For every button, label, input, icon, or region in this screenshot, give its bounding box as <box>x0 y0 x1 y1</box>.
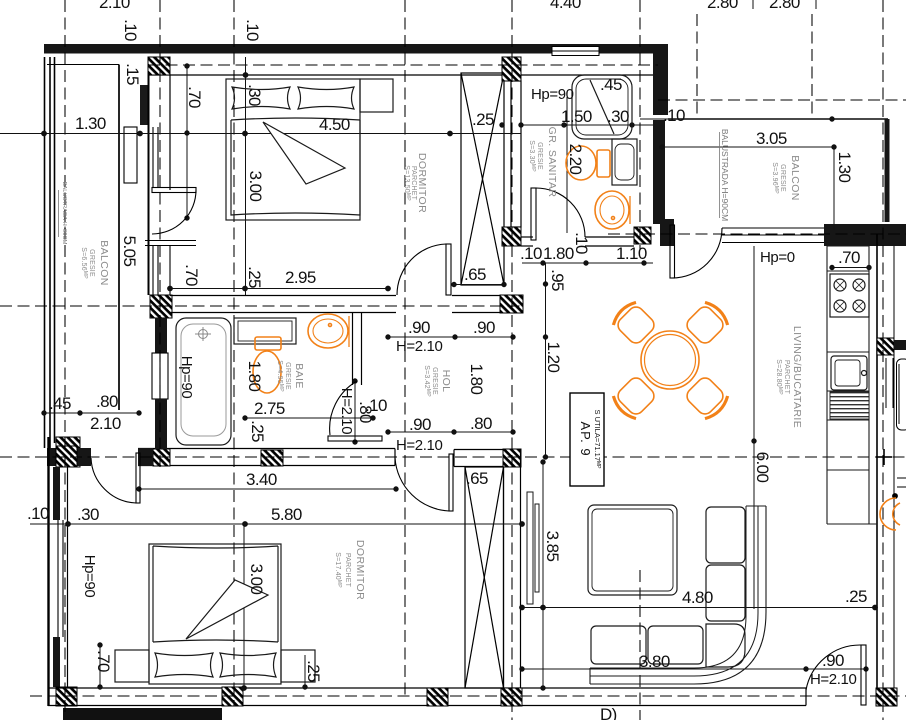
svg-text:.25: .25 <box>472 110 494 129</box>
svg-text:BALCON: BALCON <box>98 240 110 286</box>
svg-text:.25: .25 <box>304 660 323 682</box>
svg-text:.25: .25 <box>845 587 867 606</box>
svg-text:.30: .30 <box>607 107 629 126</box>
svg-text:D): D) <box>600 705 617 720</box>
svg-text:6.00: 6.00 <box>753 452 772 483</box>
svg-text:.10: .10 <box>520 244 542 263</box>
svg-text:BALUSTRADA H=90CM: BALUSTRADA H=90CM <box>720 129 730 221</box>
svg-text:.10: .10 <box>243 19 262 41</box>
svg-text:.70: .70 <box>94 650 113 672</box>
svg-text:.90: .90 <box>473 318 495 337</box>
svg-text:.30: .30 <box>245 84 264 106</box>
svg-text:DORMITOR: DORMITOR <box>354 540 366 600</box>
svg-text:AP. 9: AP. 9 <box>578 421 593 456</box>
svg-text:BALCON: BALCON <box>789 155 801 201</box>
svg-text:3.05: 3.05 <box>756 129 787 148</box>
svg-text:.80: .80 <box>96 392 118 411</box>
svg-text:LIVING/BUCATARIE: LIVING/BUCATARIE <box>791 326 803 428</box>
svg-text:.10: .10 <box>27 504 49 523</box>
svg-text:.95: .95 <box>548 269 567 291</box>
svg-text:3.40: 3.40 <box>246 470 277 489</box>
svg-text:.65: .65 <box>464 265 486 284</box>
svg-text:1.50: 1.50 <box>561 107 592 126</box>
svg-text:4.80: 4.80 <box>682 588 713 607</box>
svg-text:Hp=0: Hp=0 <box>760 249 795 266</box>
svg-text:.45: .45 <box>600 75 622 94</box>
svg-text:1.80: 1.80 <box>543 244 574 263</box>
svg-text:1.30: 1.30 <box>75 114 106 133</box>
svg-text:H=2.10: H=2.10 <box>338 388 355 434</box>
svg-text:2.10: 2.10 <box>99 0 130 12</box>
svg-text:.90: .90 <box>408 318 430 337</box>
svg-text:H=2.10: H=2.10 <box>810 671 856 688</box>
svg-text:.45: .45 <box>49 394 71 413</box>
svg-text:Hp=90: Hp=90 <box>81 555 98 598</box>
svg-text:1.80: 1.80 <box>467 364 486 395</box>
svg-text:2.80: 2.80 <box>769 0 800 12</box>
svg-text:.25: .25 <box>245 266 264 288</box>
svg-text:2.20: 2.20 <box>566 144 585 175</box>
svg-text:.10: .10 <box>663 106 685 125</box>
svg-text:BAIE: BAIE <box>293 363 305 389</box>
svg-text:PARCHET: PARCHET <box>783 360 790 395</box>
svg-text:5.80: 5.80 <box>271 505 302 524</box>
svg-text:.90: .90 <box>822 651 844 670</box>
svg-text:Hp=90: Hp=90 <box>531 86 574 103</box>
svg-text:3.80: 3.80 <box>639 652 670 671</box>
svg-text:GRESIE: GRESIE <box>88 249 95 277</box>
svg-text:.10: .10 <box>365 396 387 415</box>
svg-text:3.00: 3.00 <box>246 171 265 202</box>
svg-text:Hp=90: Hp=90 <box>178 356 195 399</box>
svg-text:H=2.10: H=2.10 <box>396 338 442 355</box>
svg-text:.30: .30 <box>77 505 99 524</box>
svg-text:.70: .70 <box>182 264 201 286</box>
svg-text:.70: .70 <box>185 86 204 108</box>
svg-text:.80: .80 <box>470 414 492 433</box>
svg-text:.15: .15 <box>123 63 142 85</box>
svg-text:1.20: 1.20 <box>544 342 563 373</box>
svg-text:GR. SANITAR: GR. SANITAR <box>546 127 558 198</box>
svg-text:1.10: 1.10 <box>616 244 647 263</box>
svg-text:2.95: 2.95 <box>285 268 316 287</box>
svg-text:3.85: 3.85 <box>543 531 562 562</box>
svg-text:.10: .10 <box>572 232 591 254</box>
svg-text:1.30: 1.30 <box>835 152 854 183</box>
svg-text:BALUSTRADA H=90CM: BALUSTRADA H=90CM <box>61 182 67 245</box>
svg-text:4.40: 4.40 <box>550 0 581 12</box>
svg-text:1.80: 1.80 <box>245 361 264 392</box>
svg-text:.70: .70 <box>838 248 860 267</box>
svg-text:.90: .90 <box>409 415 431 434</box>
svg-text:.10: .10 <box>121 19 140 41</box>
svg-text:3.00: 3.00 <box>247 564 266 595</box>
svg-text:2.80: 2.80 <box>707 0 738 12</box>
svg-text:PARCHET: PARCHET <box>344 553 351 588</box>
svg-text:GRESIE: GRESIE <box>779 164 786 192</box>
svg-text:GRESIE: GRESIE <box>431 367 438 395</box>
svg-text:GRESIE: GRESIE <box>536 142 543 170</box>
svg-text:4.50: 4.50 <box>319 115 350 134</box>
svg-text:.25: .25 <box>248 420 267 442</box>
svg-text:HOL: HOL <box>440 370 452 393</box>
svg-text:.65: .65 <box>466 469 488 488</box>
svg-text:5.05: 5.05 <box>120 236 139 267</box>
svg-text:2.75: 2.75 <box>254 399 285 418</box>
svg-text:GRESIE: GRESIE <box>284 362 291 390</box>
svg-text:H=2.10: H=2.10 <box>396 437 442 454</box>
svg-text:2.10: 2.10 <box>90 414 121 433</box>
svg-text:S UTILA=71.17MP: S UTILA=71.17MP <box>593 410 602 470</box>
